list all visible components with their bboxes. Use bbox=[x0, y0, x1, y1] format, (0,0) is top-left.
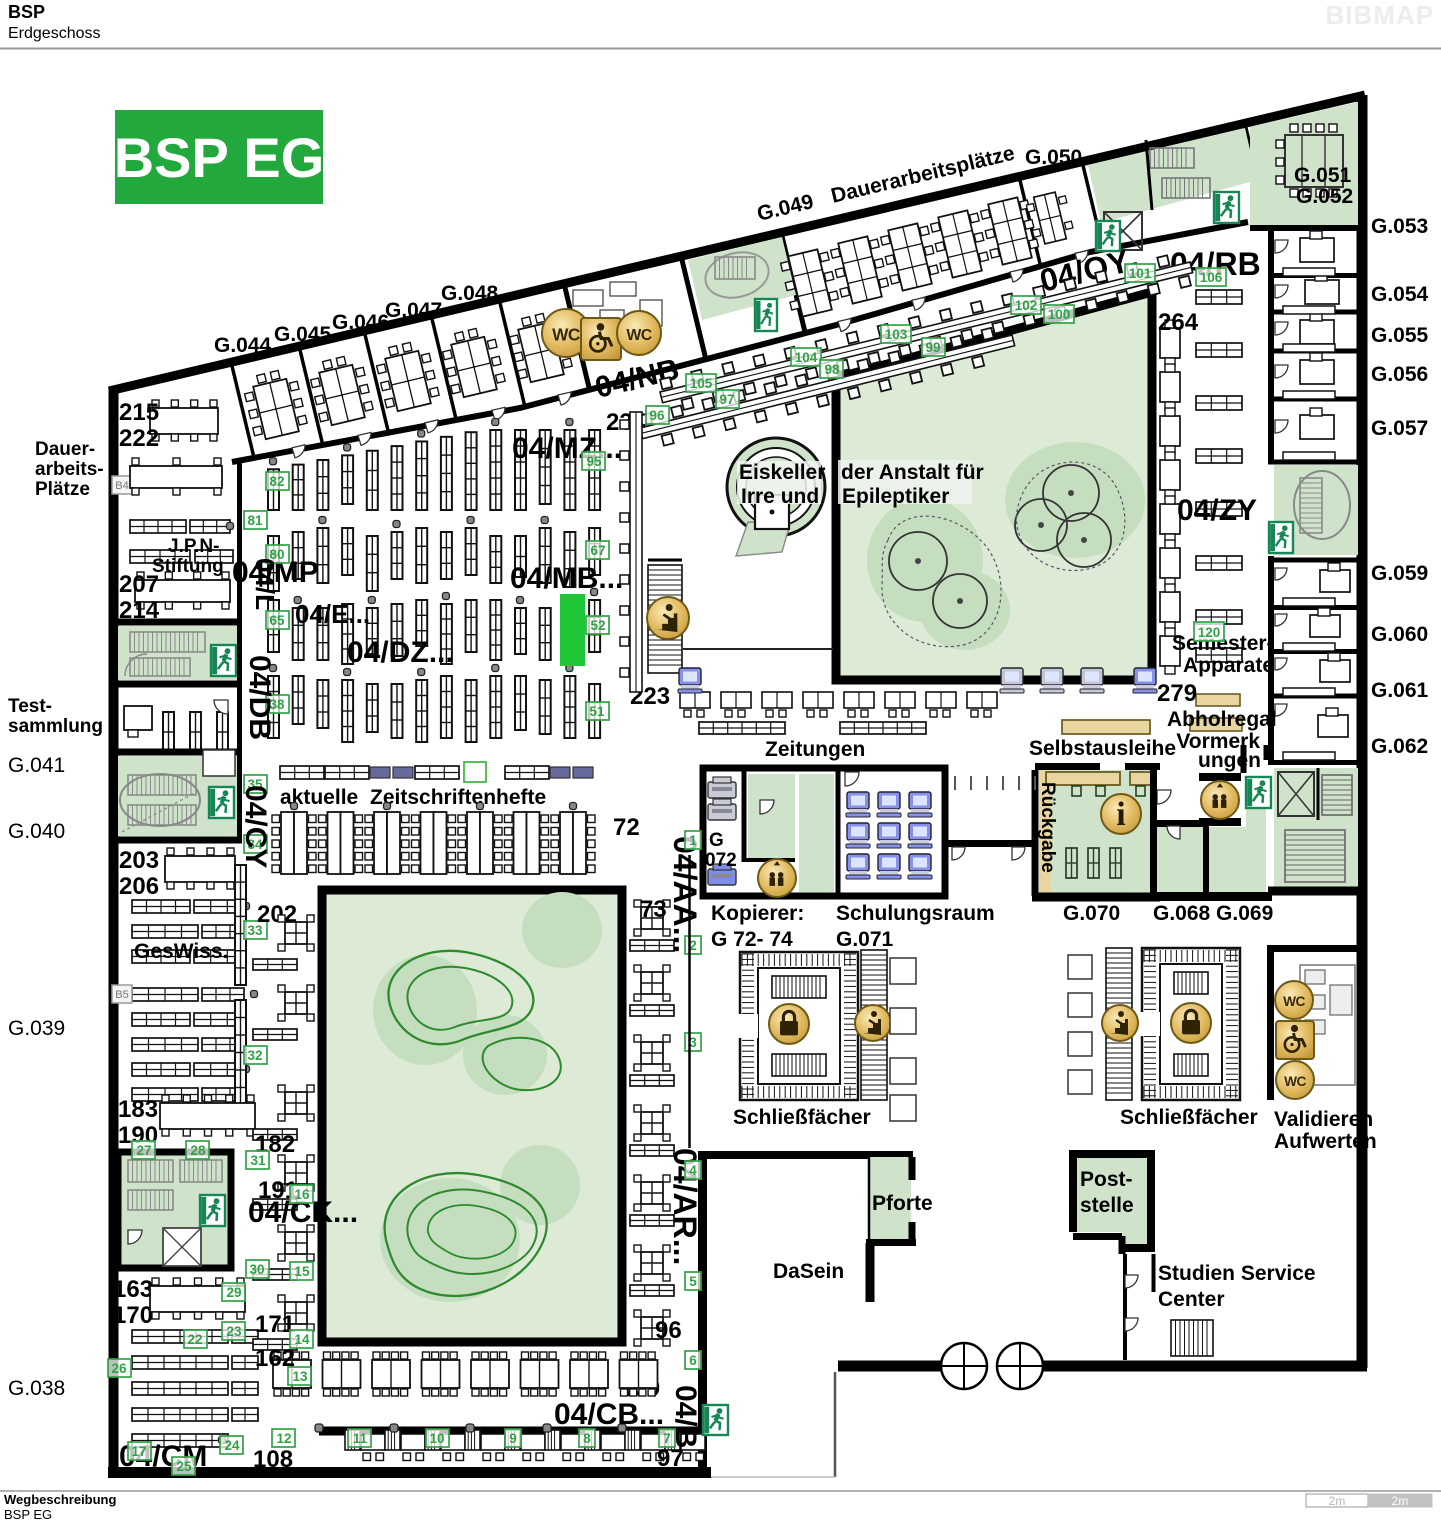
svg-text:G.039: G.039 bbox=[8, 1017, 65, 1040]
svg-text:222: 222 bbox=[119, 425, 159, 452]
svg-text:BSP EG: BSP EG bbox=[114, 126, 325, 189]
svg-text:14: 14 bbox=[294, 1332, 310, 1347]
svg-text:102: 102 bbox=[1015, 298, 1038, 313]
svg-text:DaSein: DaSein bbox=[773, 1260, 844, 1283]
svg-text:04/DZ...: 04/DZ... bbox=[347, 636, 454, 669]
svg-text:Selbstausleihe: Selbstausleihe bbox=[1029, 737, 1176, 760]
svg-text:2m: 2m bbox=[1329, 1494, 1346, 1508]
svg-text:13: 13 bbox=[292, 1369, 308, 1384]
svg-text:207: 207 bbox=[119, 571, 159, 598]
svg-text:163: 163 bbox=[113, 1276, 153, 1303]
svg-text:23: 23 bbox=[226, 1324, 242, 1339]
svg-text:100: 100 bbox=[1048, 307, 1071, 322]
svg-text:51: 51 bbox=[589, 704, 605, 719]
svg-text:WC: WC bbox=[626, 327, 651, 344]
svg-text:97: 97 bbox=[657, 1445, 684, 1472]
svg-text:G.052: G.052 bbox=[1296, 185, 1353, 208]
svg-text:G.050: G.050 bbox=[1025, 146, 1082, 169]
svg-text:2m: 2m bbox=[1392, 1494, 1409, 1508]
svg-text:G 72- 74: G 72- 74 bbox=[711, 928, 793, 951]
svg-text:G.041: G.041 bbox=[8, 754, 65, 777]
svg-text:Stiftung: Stiftung bbox=[152, 556, 224, 577]
svg-text:Apparate: Apparate bbox=[1183, 654, 1274, 677]
svg-text:G.056: G.056 bbox=[1371, 363, 1428, 386]
svg-text:Kopierer:: Kopierer: bbox=[711, 902, 804, 925]
svg-text:04/MB...: 04/MB... bbox=[510, 562, 623, 595]
svg-text:10: 10 bbox=[429, 1431, 444, 1446]
svg-text:101: 101 bbox=[1129, 266, 1152, 281]
svg-text:6: 6 bbox=[689, 1353, 697, 1368]
svg-text:8: 8 bbox=[583, 1431, 591, 1446]
svg-text:G.040: G.040 bbox=[8, 820, 65, 843]
svg-text:22: 22 bbox=[187, 1332, 202, 1347]
svg-text:203: 203 bbox=[119, 847, 159, 874]
svg-text:G.057: G.057 bbox=[1371, 417, 1428, 440]
svg-text:Epileptiker: Epileptiker bbox=[842, 485, 949, 508]
svg-text:072: 072 bbox=[705, 850, 737, 871]
svg-text:Zeitungen: Zeitungen bbox=[765, 738, 865, 761]
svg-text:30: 30 bbox=[249, 1262, 264, 1277]
svg-text:BIBMAP: BIBMAP bbox=[1325, 0, 1434, 30]
svg-text:1: 1 bbox=[689, 833, 697, 848]
svg-text:Rückgabe: Rückgabe bbox=[1037, 782, 1058, 873]
svg-text:B5: B5 bbox=[115, 989, 128, 1001]
svg-text:Zeitschriftenhefte: Zeitschriftenhefte bbox=[370, 786, 546, 809]
svg-text:24: 24 bbox=[224, 1438, 240, 1453]
svg-text:G.060: G.060 bbox=[1371, 623, 1428, 646]
svg-text:Schließfächer: Schließfächer bbox=[733, 1106, 871, 1129]
svg-text:97: 97 bbox=[719, 392, 734, 407]
svg-text:Eiskeller: Eiskeller bbox=[739, 461, 825, 484]
svg-text:Pforte: Pforte bbox=[872, 1192, 933, 1215]
svg-text:67: 67 bbox=[590, 543, 605, 558]
svg-text:98: 98 bbox=[824, 362, 840, 377]
svg-text:12: 12 bbox=[276, 1431, 291, 1446]
svg-text:Plätze: Plätze bbox=[35, 479, 90, 500]
svg-text:Post-: Post- bbox=[1080, 1168, 1133, 1191]
svg-text:04/CY: 04/CY bbox=[239, 785, 272, 868]
svg-text:16: 16 bbox=[294, 1187, 310, 1202]
svg-text:99: 99 bbox=[925, 340, 940, 355]
svg-text:279: 279 bbox=[1157, 680, 1197, 707]
svg-text:G: G bbox=[709, 830, 724, 851]
svg-text:Studien Service: Studien Service bbox=[1158, 1262, 1316, 1285]
svg-text:G.038: G.038 bbox=[8, 1377, 65, 1400]
svg-text:04/CB...: 04/CB... bbox=[554, 1398, 664, 1431]
svg-text:04/E...: 04/E... bbox=[295, 599, 370, 629]
svg-text:G.051: G.051 bbox=[1294, 164, 1352, 187]
svg-text:Aufwerten: Aufwerten bbox=[1274, 1130, 1377, 1153]
svg-text:Abholregal: Abholregal bbox=[1167, 708, 1277, 731]
svg-text:Test-: Test- bbox=[8, 696, 52, 717]
svg-text:BSP: BSP bbox=[8, 2, 45, 22]
svg-text:82: 82 bbox=[269, 474, 284, 489]
svg-text:72: 72 bbox=[613, 814, 640, 841]
svg-text:29: 29 bbox=[226, 1285, 241, 1300]
svg-text:17: 17 bbox=[131, 1444, 146, 1459]
svg-text:4: 4 bbox=[689, 1163, 697, 1178]
svg-text:183: 183 bbox=[118, 1096, 158, 1123]
svg-text:G.062: G.062 bbox=[1371, 735, 1428, 758]
svg-text:G.061: G.061 bbox=[1371, 679, 1429, 702]
svg-text:04/ZY: 04/ZY bbox=[1177, 494, 1257, 527]
svg-text:52: 52 bbox=[590, 618, 605, 633]
svg-text:9: 9 bbox=[509, 1431, 517, 1446]
svg-text:95: 95 bbox=[586, 454, 602, 469]
svg-text:04/L: 04/L bbox=[250, 558, 280, 610]
svg-text:G.055: G.055 bbox=[1371, 324, 1429, 347]
svg-text:04/DB: 04/DB bbox=[243, 655, 276, 740]
svg-text:73: 73 bbox=[640, 896, 667, 923]
svg-text:der Anstalt für: der Anstalt für bbox=[841, 461, 984, 484]
svg-text:Wegbeschreibung: Wegbeschreibung bbox=[4, 1492, 117, 1507]
svg-text:Schließfächer: Schließfächer bbox=[1120, 1106, 1258, 1129]
svg-text:Validieren: Validieren bbox=[1274, 1108, 1373, 1131]
svg-text:26: 26 bbox=[111, 1361, 127, 1376]
svg-text:WC: WC bbox=[1283, 994, 1305, 1009]
svg-text:28: 28 bbox=[190, 1143, 206, 1158]
svg-text:WC: WC bbox=[552, 325, 580, 345]
svg-text:ungen: ungen bbox=[1198, 749, 1261, 772]
svg-text:G.070: G.070 bbox=[1063, 902, 1120, 925]
svg-text:96: 96 bbox=[649, 408, 665, 423]
svg-text:G.071: G.071 bbox=[836, 928, 894, 951]
svg-text:sammlung: sammlung bbox=[8, 716, 103, 737]
svg-text:G.045: G.045 bbox=[274, 323, 332, 346]
svg-text:106: 106 bbox=[1200, 270, 1223, 285]
svg-text:31: 31 bbox=[250, 1153, 266, 1168]
svg-text:B4: B4 bbox=[115, 480, 128, 492]
svg-text:J.P.N-: J.P.N- bbox=[168, 536, 219, 557]
svg-text:81: 81 bbox=[247, 513, 263, 528]
svg-text:arbeits-: arbeits- bbox=[35, 459, 104, 480]
svg-text:171: 171 bbox=[255, 1311, 295, 1338]
svg-text:7: 7 bbox=[663, 1431, 671, 1446]
svg-text:15: 15 bbox=[294, 1264, 310, 1279]
svg-text:27: 27 bbox=[136, 1143, 151, 1158]
svg-text:264: 264 bbox=[1158, 309, 1199, 336]
svg-text:Erdgeschoss: Erdgeschoss bbox=[8, 25, 101, 42]
svg-text:G.044: G.044 bbox=[214, 334, 272, 357]
svg-text:G.048: G.048 bbox=[441, 282, 499, 305]
svg-text:96: 96 bbox=[655, 1317, 682, 1344]
svg-text:108: 108 bbox=[253, 1446, 293, 1473]
svg-text:105: 105 bbox=[690, 376, 713, 391]
svg-text:G.053: G.053 bbox=[1371, 215, 1428, 238]
svg-text:103: 103 bbox=[885, 327, 908, 342]
svg-text:215: 215 bbox=[119, 399, 159, 426]
svg-text:104: 104 bbox=[795, 350, 818, 365]
svg-text:G.054: G.054 bbox=[1371, 283, 1429, 306]
svg-text:BSP EG: BSP EG bbox=[4, 1507, 52, 1522]
svg-text:G.046: G.046 bbox=[332, 311, 389, 334]
svg-text:170: 170 bbox=[113, 1302, 153, 1329]
svg-text:32: 32 bbox=[247, 1048, 262, 1063]
svg-text:WC: WC bbox=[1284, 1074, 1306, 1089]
svg-text:stelle: stelle bbox=[1080, 1194, 1134, 1217]
svg-text:G.059: G.059 bbox=[1371, 562, 1428, 585]
svg-text:G.047: G.047 bbox=[385, 299, 442, 322]
svg-text:25: 25 bbox=[176, 1459, 192, 1474]
svg-text:11: 11 bbox=[353, 1431, 368, 1446]
svg-text:i: i bbox=[1116, 796, 1125, 833]
svg-text:GesWiss.: GesWiss. bbox=[134, 940, 228, 963]
svg-text:G.068 G.069: G.068 G.069 bbox=[1153, 902, 1273, 925]
svg-text:Schulungsraum: Schulungsraum bbox=[836, 902, 995, 925]
svg-text:65: 65 bbox=[269, 613, 285, 628]
svg-text:Dauer-: Dauer- bbox=[35, 439, 95, 460]
svg-text:Center: Center bbox=[1158, 1288, 1225, 1311]
svg-text:120: 120 bbox=[1198, 625, 1221, 640]
svg-text:206: 206 bbox=[119, 873, 159, 900]
svg-text:Irre und: Irre und bbox=[741, 485, 819, 508]
svg-text:5: 5 bbox=[689, 1274, 697, 1289]
